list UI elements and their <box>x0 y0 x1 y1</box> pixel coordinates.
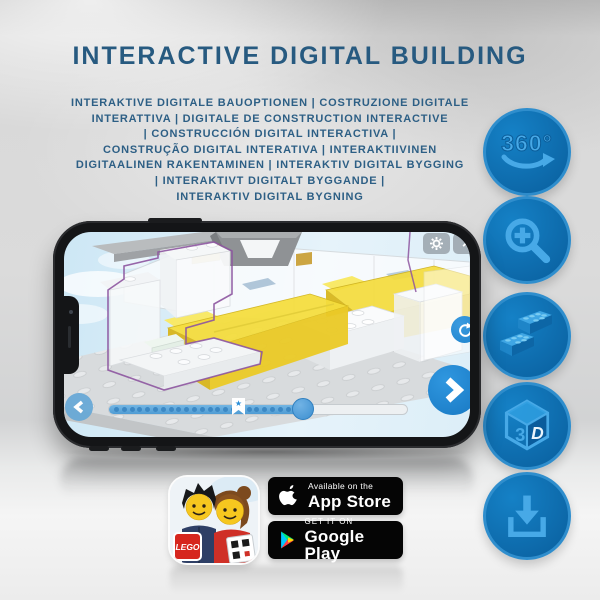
subtitle-line: INTERAKTIVE DIGITALE BAUOPTIONEN | COSTR… <box>30 96 510 112</box>
360-label: 360° <box>501 133 553 153</box>
google-play-icon <box>278 528 297 552</box>
subtitle-line: | INTERAKTIVT DIGITALT BYGGANDE | <box>30 174 510 190</box>
rotate-icon <box>457 322 471 338</box>
lego-bricks-icon <box>483 292 571 380</box>
app-store-tagline: Available on the <box>308 482 391 491</box>
page-title: INTERACTIVE DIGITAL BUILDING <box>0 42 600 71</box>
chevron-left-icon <box>72 399 86 415</box>
camera-icon <box>69 310 73 314</box>
speaker-icon <box>68 326 71 348</box>
3d-view-icon: 3 D <box>483 382 571 470</box>
build-progress-slider[interactable]: ★ <box>108 404 408 415</box>
chevron-right-icon <box>440 376 466 404</box>
google-play-name: Google Play <box>305 528 394 562</box>
close-icon: × <box>462 235 470 253</box>
phone-side-button <box>156 446 176 451</box>
zoom-in-icon <box>483 196 571 284</box>
360-rotation-icon: 360° <box>483 108 571 196</box>
subtitle-line: INTERATTIVA | DIGITALE DE CONSTRUCTION I… <box>30 112 510 128</box>
google-play-tagline: GET IT ON <box>305 518 394 526</box>
magnifier-plus-icon <box>501 214 553 266</box>
phone-side-button <box>148 218 202 223</box>
multilingual-subtitle: INTERAKTIVE DIGITALE BAUOPTIONEN | COSTR… <box>30 96 510 205</box>
lego-minifigures-illustration: LEGO <box>170 477 258 563</box>
cube-d-label: D <box>531 423 543 443</box>
lego-app-icon[interactable]: LEGO <box>170 477 258 563</box>
gear-icon <box>430 237 443 250</box>
phone-reflection <box>60 458 474 502</box>
slider-fill <box>109 405 303 414</box>
slider-thumb[interactable] <box>292 398 314 420</box>
settings-button[interactable] <box>423 233 450 254</box>
badges-reflection <box>170 566 403 594</box>
lego-logo-label: LEGO <box>175 542 199 552</box>
phone-screen: × <box>64 232 470 437</box>
apple-logo-icon <box>278 483 300 509</box>
app-store-badge[interactable]: Available on the App Store <box>268 477 403 515</box>
download-arrow-icon <box>499 488 555 544</box>
phone-notch <box>64 296 79 374</box>
subtitle-line: INTERAKTIV DIGITAL BYGNING <box>30 190 510 206</box>
cube-3-label: 3 <box>515 424 525 445</box>
app-store-name: App Store <box>308 493 391 510</box>
phone-side-button <box>121 446 141 451</box>
page-background: INTERACTIVE DIGITAL BUILDING INTERAKTIVE… <box>0 0 600 600</box>
previous-step-button[interactable] <box>65 393 93 421</box>
bricks-glyph-icon <box>498 307 556 365</box>
rotation-arrow-icon <box>499 153 555 175</box>
slider-dots <box>114 407 291 412</box>
phone-side-button <box>89 446 109 451</box>
download-icon <box>483 472 571 560</box>
next-step-button[interactable] <box>428 365 470 415</box>
subtitle-line: | CONSTRUCCIÓN DIGITAL INTERACTIVA | <box>30 127 510 143</box>
close-button[interactable]: × <box>453 233 470 254</box>
phone: × <box>53 221 481 448</box>
subtitle-line: CONSTRUÇÃO DIGITAL INTERATIVA | INTERAKT… <box>30 143 510 159</box>
subtitle-line: DIGITAALINEN RAKENTAMINEN | INTERAKTIV D… <box>30 158 510 174</box>
3d-cube-icon: 3 D <box>499 398 555 454</box>
google-play-badge[interactable]: GET IT ON Google Play <box>268 521 403 559</box>
